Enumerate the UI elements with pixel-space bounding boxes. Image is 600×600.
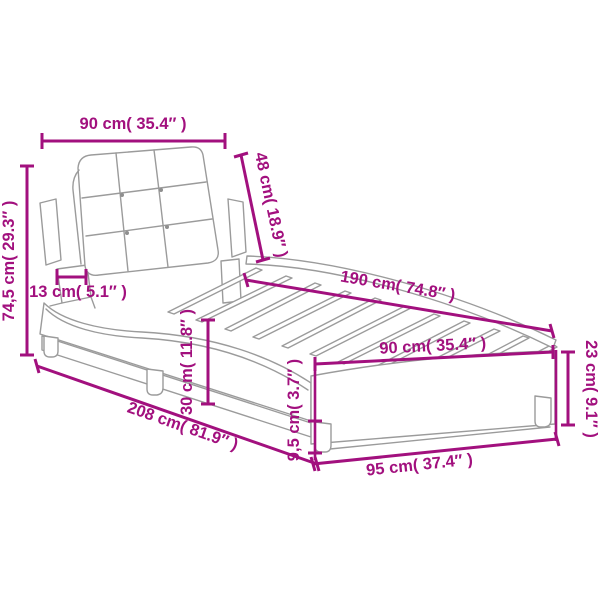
- diagram-canvas: 90 cm( 35.4″ ) 48 cm( 18.9″ ) 74,5 cm( 2…: [0, 0, 600, 600]
- leg-foot-left: [315, 422, 331, 452]
- dim-headboard-width: 90 cm( 35.4″ ): [42, 115, 225, 149]
- leg-foot-right: [535, 396, 551, 427]
- dim-label-leg-height: 9,5 cm( 3.7″ ): [285, 359, 303, 461]
- dim-label-total-height: 74,5 cm( 29.3″ ): [0, 201, 18, 322]
- dim-foot-height: 23 cm( 9.1″ ): [556, 340, 600, 441]
- dim-label-headboard-height: 48 cm( 18.9″ ): [251, 151, 291, 259]
- headboard-wing-right: [228, 199, 246, 257]
- leg-mid-left: [147, 369, 163, 395]
- dim-label-foot-width: 95 cm( 37.4″ ): [365, 450, 473, 479]
- dim-total-height: 74,5 cm( 29.3″ ): [0, 166, 34, 355]
- dim-label-foot-height: 23 cm( 9.1″ ): [582, 340, 600, 438]
- dim-label-side-height: 30 cm( 11.8″ ): [178, 309, 196, 415]
- dim-label-headboard-width: 90 cm( 35.4″ ): [80, 115, 187, 133]
- bed-dimension-diagram: 90 cm( 35.4″ ) 48 cm( 18.9″ ) 74,5 cm( 2…: [0, 0, 600, 600]
- leg-front-left: [44, 336, 58, 357]
- dim-label-headboard-depth: 13 cm( 5.1″ ): [29, 283, 127, 301]
- headboard-wing-left: [40, 199, 61, 265]
- headboard-cushion: [78, 147, 218, 275]
